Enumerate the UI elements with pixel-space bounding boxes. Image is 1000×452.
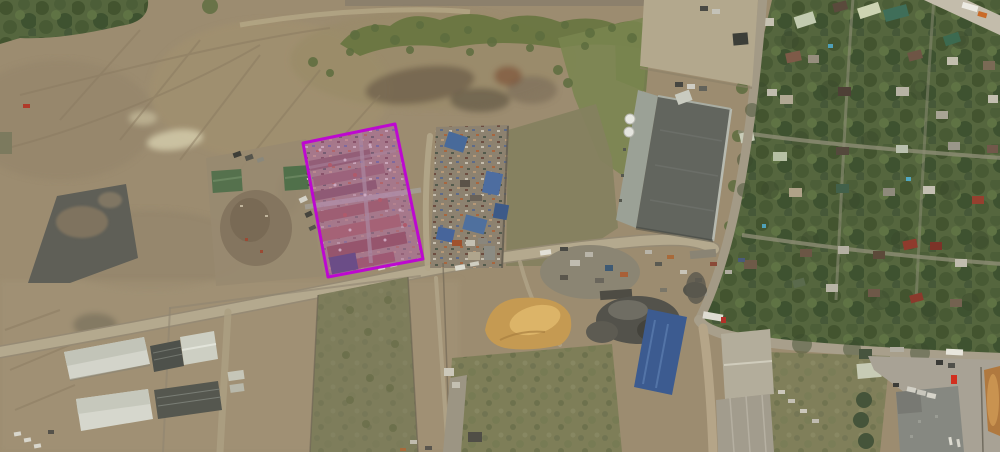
satellite-canvas[interactable] — [0, 0, 1000, 452]
scrapyard — [430, 125, 509, 268]
satellite-map-view[interactable] — [0, 0, 1000, 452]
red-car — [951, 375, 957, 384]
